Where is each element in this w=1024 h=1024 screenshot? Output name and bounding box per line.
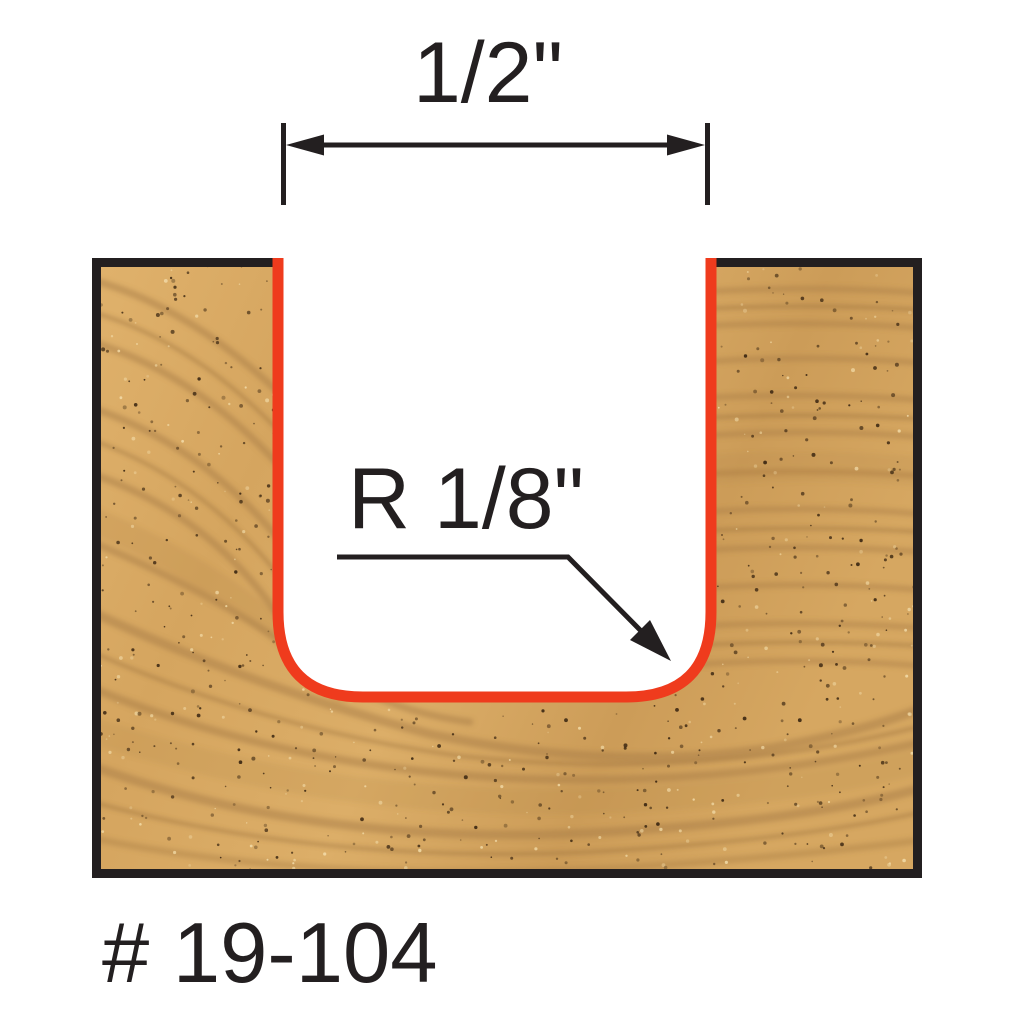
width-dimension-label: 1/2" [413, 25, 563, 121]
diagram-canvas: 1/2" R 1/8" # 19-104 [0, 0, 1024, 1024]
wood-block [92, 258, 922, 878]
part-number-label: # 19-104 [102, 906, 438, 1001]
radius-dimension-label: R 1/8" [348, 451, 584, 547]
router-bit-profile-diagram: 1/2" R 1/8" # 19-104 [0, 0, 1024, 1024]
